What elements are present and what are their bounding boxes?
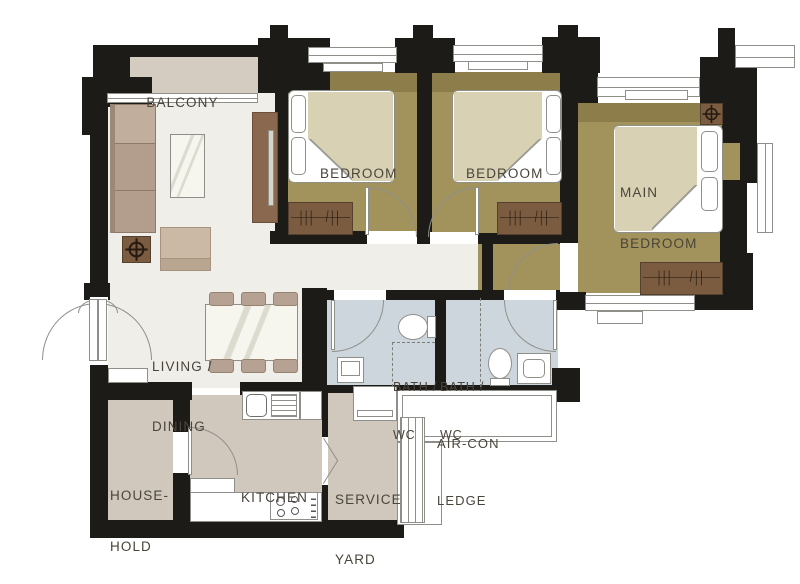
wall-main-bedroom-left bbox=[560, 73, 578, 243]
wash-basin-bowl bbox=[523, 359, 545, 378]
bedroom2-window-sill bbox=[468, 61, 528, 70]
wall-pillar-d bbox=[718, 28, 735, 60]
wall-bath-top-a bbox=[327, 290, 334, 300]
wall-corner-bottom-right bbox=[720, 253, 753, 310]
service-yard-label: SERVICE YARD bbox=[335, 450, 402, 584]
bedroom2-window bbox=[453, 45, 543, 62]
bath2-door-leaf bbox=[553, 300, 557, 350]
wall-main-bedroom-top bbox=[578, 73, 598, 103]
dining-chair bbox=[273, 359, 298, 373]
pillow bbox=[546, 95, 561, 133]
wall-right-upper bbox=[722, 60, 757, 143]
wall-kitchen-sy-top bbox=[322, 388, 328, 437]
main-bedroom-label: MAIN BEDROOM bbox=[620, 150, 697, 286]
toilet bbox=[398, 314, 428, 340]
crosshair-icon bbox=[701, 104, 722, 124]
wall-main-bedroom-topright bbox=[700, 57, 722, 103]
main-bedroom-bottom-sill bbox=[597, 311, 643, 324]
toilet-cistern bbox=[490, 378, 510, 386]
armchair bbox=[160, 227, 211, 271]
wall-main-bedroom-bottom-right bbox=[695, 293, 720, 310]
main-bedroom-floor-edge bbox=[578, 103, 700, 122]
dining-chair bbox=[273, 292, 298, 306]
wash-basin-bowl bbox=[341, 361, 360, 376]
pillow bbox=[701, 131, 718, 172]
wall-pillar-a bbox=[270, 25, 288, 45]
side-table bbox=[122, 236, 151, 263]
bath2-door-gap bbox=[504, 290, 556, 300]
kitchen-counter-right bbox=[300, 391, 322, 420]
dining-chair bbox=[241, 292, 266, 306]
wall-top-between-bedrooms bbox=[395, 38, 455, 73]
wall-kitchen-sy-bottom bbox=[322, 485, 328, 522]
wall-pillar-b bbox=[413, 25, 433, 43]
toilet-cistern bbox=[427, 316, 436, 338]
kitchen-label: KITCHEN bbox=[241, 455, 308, 540]
hanger-icon: ||| bbox=[300, 211, 315, 227]
dining-chair bbox=[241, 359, 266, 373]
corridor-floor bbox=[288, 243, 484, 292]
bath1-door-leaf bbox=[331, 300, 335, 350]
entrance-door-leaf-a bbox=[89, 299, 98, 361]
crosshair-icon bbox=[123, 237, 150, 262]
pillow bbox=[291, 95, 306, 133]
wall-bedroom-divider bbox=[417, 73, 432, 244]
dining-chair bbox=[209, 292, 234, 306]
wall-right-lower bbox=[720, 180, 747, 255]
kitchen-sink-basin bbox=[246, 394, 267, 417]
tv-icon bbox=[268, 130, 274, 206]
wall-living-bath bbox=[302, 288, 327, 395]
stove-控knob-strip bbox=[311, 494, 316, 518]
dining-table bbox=[205, 304, 298, 361]
pillow bbox=[291, 137, 306, 175]
bedroom2-label: BEDROOM bbox=[466, 131, 543, 216]
right-top-window bbox=[735, 45, 795, 68]
washing-machine bbox=[353, 386, 397, 421]
shoe-cabinet bbox=[108, 368, 148, 383]
main-bedroom-top-sill bbox=[625, 90, 688, 100]
pillow bbox=[546, 137, 561, 175]
entrance-door-leaf-b bbox=[98, 299, 107, 361]
wall-top-right-of-bedroom2 bbox=[542, 37, 600, 73]
wall-left-upper bbox=[90, 77, 108, 300]
bedroom1-window bbox=[308, 47, 397, 63]
kitchen-sink-drainer bbox=[271, 394, 297, 417]
bedroom2-floor-edge bbox=[432, 72, 562, 92]
wall-right-mid bbox=[740, 143, 757, 183]
pillow bbox=[701, 177, 718, 211]
toilet bbox=[488, 348, 512, 379]
wall-pillar-c bbox=[558, 25, 578, 41]
washing-machine-drawer bbox=[357, 410, 393, 417]
main-bedroom-bottom-window bbox=[585, 295, 695, 311]
bath1-door-gap bbox=[334, 290, 386, 300]
sofa-cushion-line bbox=[115, 190, 155, 191]
bedroom1-window-sill bbox=[323, 63, 383, 72]
bedroom1-label: BEDROOM bbox=[320, 131, 397, 216]
armchair-back bbox=[161, 258, 210, 270]
right-bay-window bbox=[757, 143, 773, 233]
balcony-label: BALCONY bbox=[107, 60, 258, 145]
main-bedroom-door-gap bbox=[560, 243, 578, 292]
bath1-shower-screen bbox=[392, 342, 435, 343]
main-bedroom-corner-unit bbox=[700, 103, 723, 125]
floor-plan: ||| /|| ||| /|| ||| /|| bbox=[0, 0, 800, 584]
wall-hall-stub bbox=[482, 244, 493, 294]
aircon-ledge-label: AIR-CON LEDGE bbox=[437, 396, 500, 548]
household-shelter-label: HOUSE- HOLD SHELTER bbox=[110, 453, 179, 584]
dining-chair bbox=[209, 359, 234, 373]
